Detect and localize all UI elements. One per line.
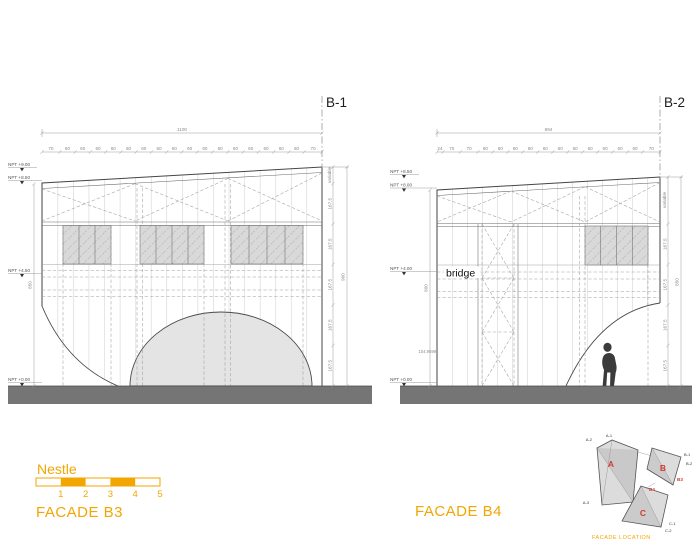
keyplan-corner-a1: A-1 — [606, 433, 613, 438]
variable-dim-b4: variable — [662, 175, 670, 224]
svg-text:NPT +0.00: NPT +0.00 — [390, 377, 412, 382]
svg-text:70: 70 — [467, 146, 473, 151]
keyplan-shape-a — [597, 440, 638, 505]
keyplan-title: FACADE LOCATION — [592, 535, 651, 541]
svg-text:NPT +4.00: NPT +4.00 — [390, 266, 412, 271]
svg-text:70: 70 — [311, 146, 317, 151]
svg-text:60: 60 — [95, 146, 101, 151]
svg-text:NPT +8.00: NPT +8.00 — [390, 183, 412, 188]
svg-text:60: 60 — [573, 146, 579, 151]
left-height-b4: 800 — [424, 284, 429, 292]
keyplan-corner-c2: C-2 — [665, 528, 672, 533]
scale-numbers: 1 2 3 4 5 — [58, 489, 162, 500]
title-facade-b4: FACADE B4 — [415, 503, 502, 520]
svg-text:60: 60 — [588, 146, 594, 151]
svg-text:70: 70 — [649, 146, 655, 151]
svg-text:60: 60 — [513, 146, 519, 151]
svg-text:4: 4 — [133, 489, 138, 500]
svg-text:167.5: 167.5 — [663, 279, 668, 291]
svg-text:60: 60 — [172, 146, 178, 151]
svg-text:2: 2 — [83, 489, 88, 500]
variable-dim-b3: variable — [327, 165, 335, 183]
keyplan-ref-b4: B4 — [649, 487, 655, 492]
svg-text:NPT +0.00: NPT +0.00 — [8, 377, 30, 382]
svg-text:60: 60 — [126, 146, 132, 151]
svg-text:167.5: 167.5 — [328, 360, 333, 372]
svg-text:60: 60 — [65, 146, 71, 151]
bridge-label: bridge — [446, 268, 475, 280]
ground-b4 — [400, 386, 692, 404]
svg-text:167.5: 167.5 — [663, 319, 668, 331]
keyplan-corner-c1: C-1 — [669, 521, 676, 526]
overall-height-b4: 850 — [675, 278, 680, 286]
svg-text:60: 60 — [498, 146, 504, 151]
svg-text:60: 60 — [603, 146, 609, 151]
level-marker-b3-900: NPT +9.00 — [8, 162, 37, 171]
level-marker-b3-450: NPT +4.50 — [8, 268, 42, 277]
svg-text:60: 60 — [202, 146, 208, 151]
variable-label-b3: variable — [327, 167, 332, 184]
level-marker-b4-850: NPT +8.50 — [390, 169, 419, 178]
svg-text:60: 60 — [157, 146, 163, 151]
overall-width-dim-b4: 894 — [435, 127, 661, 137]
keyplan-corner-a2: A-2 — [586, 437, 593, 442]
keyplan-corner-b1: B-1 — [684, 452, 691, 457]
scale-name: Nestle — [37, 461, 77, 477]
svg-text:60: 60 — [618, 146, 624, 151]
keyplan-corner-a3: A-3 — [583, 500, 590, 505]
left-height-dim-b4: 800 — [424, 188, 432, 388]
overall-width-b3: 1100 — [177, 127, 187, 132]
keyplan-label-c: C — [640, 508, 646, 518]
keyplan-label-b: B — [660, 463, 666, 473]
svg-text:60: 60 — [279, 146, 285, 151]
facade-b3-drawing: B-1 1100 7060606060606060606060606060606… — [8, 95, 372, 404]
window-group-b3-1 — [63, 226, 111, 265]
svg-text:NPT +8.50: NPT +8.50 — [390, 169, 412, 174]
svg-text:3: 3 — [108, 489, 113, 500]
svg-text:60: 60 — [80, 146, 86, 151]
svg-text:1: 1 — [58, 489, 63, 500]
scale-bar — [36, 478, 160, 486]
window-group-b3-3 — [231, 226, 303, 265]
svg-text:60: 60 — [141, 146, 147, 151]
overall-height-b3: 900 — [341, 273, 346, 281]
overall-width-dim-b3: 1100 — [40, 127, 323, 137]
svg-text:60: 60 — [632, 146, 638, 151]
svg-text:167.5: 167.5 — [663, 238, 668, 250]
variable-label-b4: variable — [662, 192, 667, 209]
facade-b4-drawing: bridge 104.9599 B-2 894 2470706060606060… — [390, 95, 692, 404]
svg-text:60: 60 — [111, 146, 117, 151]
svg-text:167.5: 167.5 — [663, 360, 668, 372]
svg-text:60: 60 — [294, 146, 300, 151]
svg-text:60: 60 — [543, 146, 549, 151]
left-height-b3: 850 — [28, 281, 33, 289]
left-height-dim-b3: 850 — [28, 182, 36, 388]
svg-text:167.5: 167.5 — [328, 279, 333, 291]
svg-text:70: 70 — [48, 146, 54, 151]
keyplan-ref-b3: B3 — [677, 477, 683, 482]
level-marker-b3-000: NPT +0.00 — [8, 377, 42, 386]
svg-text:60: 60 — [528, 146, 534, 151]
level-marker-b3-850: NPT +8.50 — [8, 175, 42, 184]
window-group-b4 — [585, 226, 648, 265]
svg-text:60: 60 — [233, 146, 239, 151]
svg-text:167.5: 167.5 — [328, 319, 333, 331]
tick-row-b3: 706060606060606060606060606060606070 — [40, 146, 323, 154]
svg-text:60: 60 — [218, 146, 224, 151]
elevation-drawing-svg: B-1 1100 7060606060606060606060606060606… — [0, 0, 700, 548]
keyplan-label-a: A — [608, 459, 614, 469]
svg-text:5: 5 — [157, 489, 162, 500]
keyplan: A B C A-1 A-2 A-3 B-1 B-2 C-1 C-2 B3 B4 … — [583, 433, 693, 541]
svg-text:60: 60 — [558, 146, 564, 151]
svg-text:167.5: 167.5 — [328, 238, 333, 250]
right-dim-chain-b3: 167.5167.5167.5167.5167.5 — [328, 182, 335, 388]
drawing-sheet: B-1 1100 7060606060606060606060606060606… — [0, 0, 700, 548]
scale-legend: Nestle 1 2 3 4 5 — [36, 461, 163, 500]
svg-text:60: 60 — [187, 146, 193, 151]
overall-height-dim-b3: 900 — [322, 165, 349, 388]
right-dim-chain-b4: 167.5167.5167.5167.5 — [663, 222, 670, 388]
keyplan-corner-b2: B-2 — [686, 461, 693, 466]
overall-width-b4: 894 — [545, 127, 553, 132]
svg-text:60: 60 — [263, 146, 269, 151]
tick-row-b4: 247070606060606060606060606070 — [435, 146, 661, 154]
dimension-note-b4: 104.9599 — [419, 349, 437, 354]
svg-text:NPT +4.50: NPT +4.50 — [8, 268, 30, 273]
svg-text:167.5: 167.5 — [328, 198, 333, 210]
svg-text:60: 60 — [248, 146, 254, 151]
svg-text:24: 24 — [437, 146, 443, 151]
svg-text:NPT +8.50: NPT +8.50 — [8, 175, 30, 180]
svg-text:70: 70 — [449, 146, 455, 151]
section-label-b1: B-1 — [326, 95, 347, 110]
title-facade-b3: FACADE B3 — [36, 504, 123, 521]
svg-text:NPT +9.00: NPT +9.00 — [8, 162, 30, 167]
section-label-b2: B-2 — [664, 95, 685, 110]
window-group-b3-2 — [140, 226, 204, 265]
svg-text:60: 60 — [483, 146, 489, 151]
ground-b3 — [8, 386, 372, 404]
